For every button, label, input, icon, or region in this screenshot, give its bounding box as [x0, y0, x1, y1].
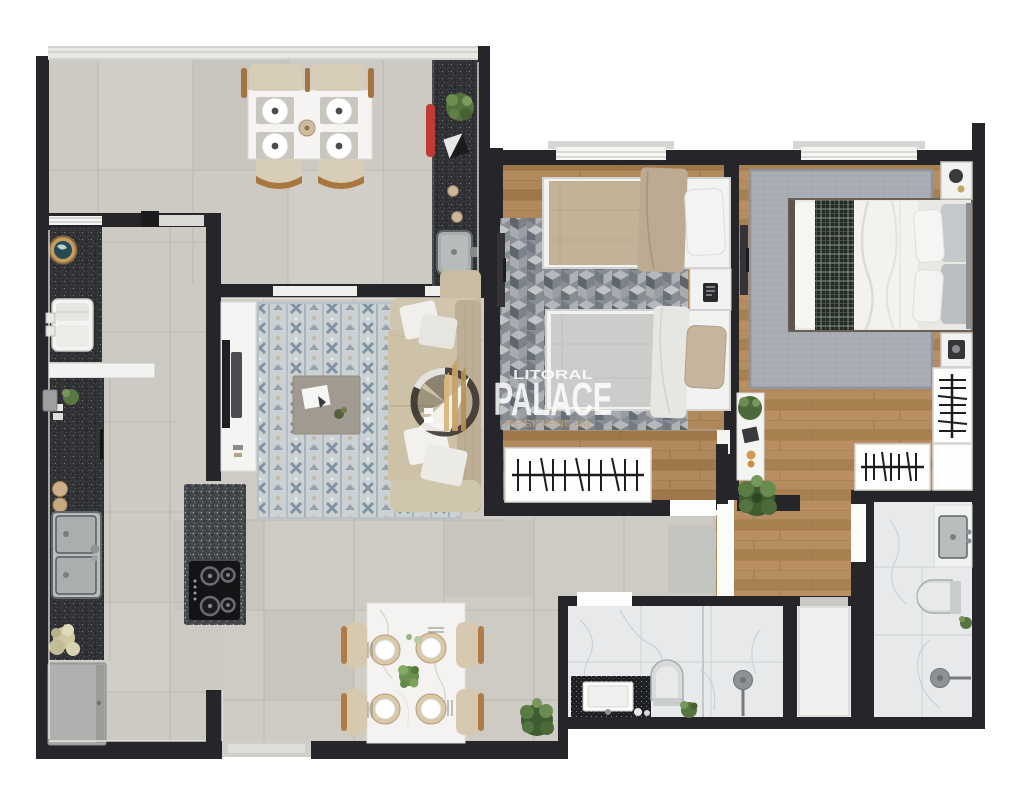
svg-text:PALACE: PALACE: [494, 373, 613, 425]
svg-text:RESIDENCIAL: RESIDENCIAL: [504, 419, 595, 430]
